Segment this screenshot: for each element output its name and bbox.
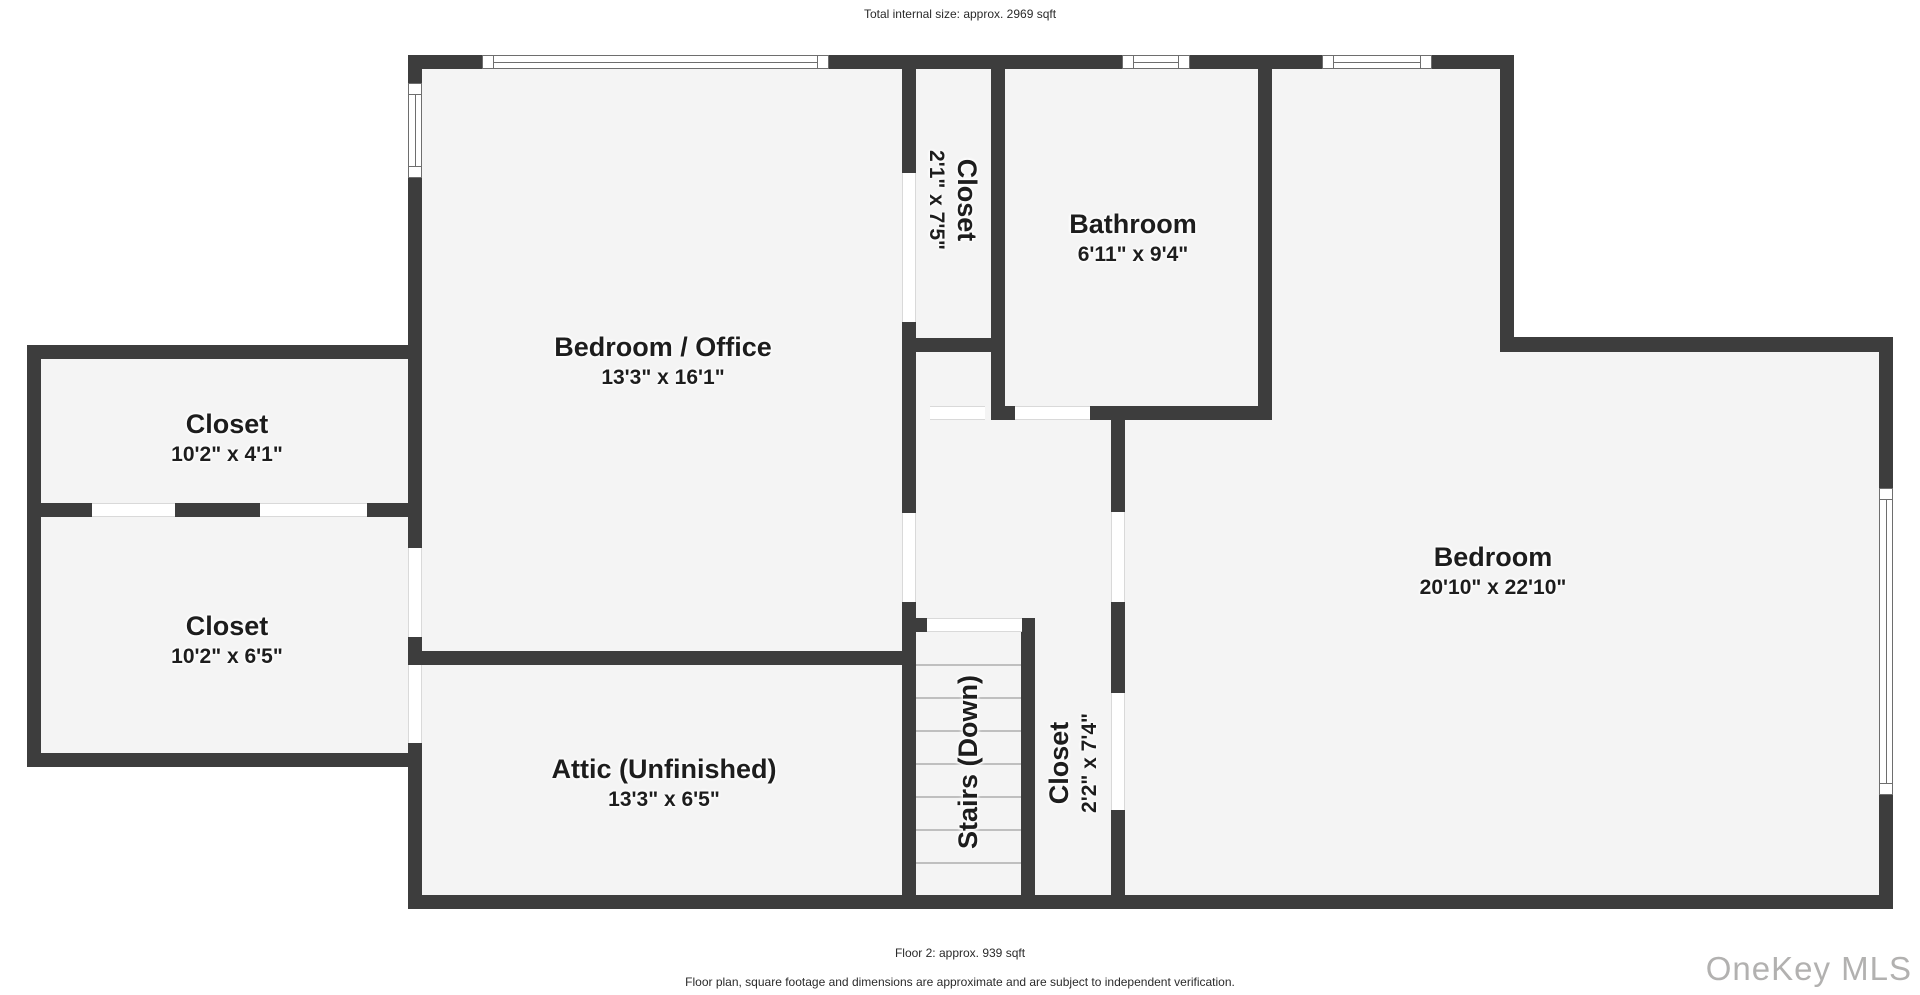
- stair-tread: [916, 664, 1021, 666]
- wall-bathroom-right: [1258, 55, 1272, 420]
- room-label-stairs: Stairs (Down): [952, 675, 986, 849]
- room-label-bathroom: Bathroom 6'11" x 9'4": [1069, 208, 1197, 268]
- wall-bedroom-step: [1500, 337, 1893, 352]
- door-opening-wing-divider-1: [92, 503, 175, 517]
- window-cap: [408, 83, 422, 95]
- window-glass-line: [1886, 500, 1887, 783]
- door-opening-closet-to-bedroom-office: [408, 548, 422, 637]
- stair-tread: [916, 862, 1021, 864]
- room-dims: 13'3" x 6'5": [552, 787, 777, 813]
- room-name: Stairs (Down): [952, 675, 986, 849]
- room-dims: 6'11" x 9'4": [1069, 242, 1197, 268]
- room-label-closet-bottom-left: Closet 10'2" x 6'5": [171, 610, 283, 670]
- window-bedroom-top: [1322, 55, 1432, 69]
- wall-center-closet-right: [991, 62, 1005, 420]
- room-dims: 20'10" x 22'10": [1420, 575, 1567, 601]
- window-cap: [1879, 783, 1893, 795]
- floor-area-main-block: [415, 345, 1886, 904]
- door-opening-stairs-top: [927, 618, 1022, 632]
- floor-plan-canvas: Total internal size: approx. 2969 sqft: [0, 0, 1920, 995]
- window-cap: [408, 166, 422, 178]
- door-opening-landing-to-bedroom: [1111, 512, 1125, 602]
- room-label-closet-top-left: Closet 10'2" x 4'1": [171, 408, 283, 468]
- window-cap: [1879, 488, 1893, 500]
- room-name: Closet: [171, 610, 283, 644]
- window-glass-line: [415, 95, 416, 166]
- room-dims: 13'3" x 16'1": [554, 365, 772, 391]
- window-cap: [817, 55, 829, 69]
- room-name: Bathroom: [1069, 208, 1197, 242]
- window-bathroom-top: [1122, 55, 1190, 69]
- door-opening-landing-left: [902, 513, 916, 602]
- wall-center-closet-bottom: [902, 338, 1005, 352]
- room-dims: 2'1" x 7'5": [923, 150, 949, 250]
- window-glass-line: [1134, 62, 1178, 63]
- wall-left-main: [408, 55, 422, 909]
- door-opening-center-closet: [902, 173, 916, 322]
- window-bedroom-right: [1879, 488, 1893, 795]
- disclaimer-caption: Floor plan, square footage and dimension…: [685, 975, 1235, 989]
- door-opening-landing-top: [930, 406, 985, 420]
- room-label-attic: Attic (Unfinished) 13'3" x 6'5": [552, 753, 777, 813]
- room-label-bedroom-office: Bedroom / Office 13'3" x 16'1": [554, 331, 772, 391]
- watermark: OneKey MLS: [1706, 950, 1912, 988]
- wall-wing-left: [27, 345, 41, 767]
- window-glass-line: [1334, 62, 1420, 63]
- room-name: Closet: [171, 408, 283, 442]
- window-glass-line: [494, 62, 817, 63]
- window-bedroom-office-top: [482, 55, 829, 69]
- wall-top-right-vertical: [1500, 55, 1514, 352]
- room-name: Closet: [1043, 713, 1077, 813]
- window-bedroom-office-left: [408, 83, 422, 178]
- wall-stairs-right: [1021, 618, 1035, 909]
- window-cap: [482, 55, 494, 69]
- room-dims: 10'2" x 4'1": [171, 442, 283, 468]
- wall-bedroom-left: [1111, 406, 1125, 909]
- wall-wing-bottom: [27, 753, 422, 767]
- floor-caption: Floor 2: approx. 939 sqft: [895, 946, 1025, 960]
- room-name: Bedroom / Office: [554, 331, 772, 365]
- room-dims: 2'2" x 7'4": [1077, 713, 1103, 813]
- door-opening-closet-to-attic: [408, 665, 422, 743]
- room-label-closet-right: Closet 2'2" x 7'4": [1043, 713, 1103, 813]
- window-cap: [1122, 55, 1134, 69]
- room-name: Bedroom: [1420, 541, 1567, 575]
- room-name: Attic (Unfinished): [552, 753, 777, 787]
- window-cap: [1322, 55, 1334, 69]
- window-cap: [1420, 55, 1432, 69]
- total-size-caption: Total internal size: approx. 2969 sqft: [864, 7, 1056, 21]
- room-label-bedroom: Bedroom 20'10" x 22'10": [1420, 541, 1567, 601]
- window-cap: [1178, 55, 1190, 69]
- room-label-center-closet: Closet 2'1" x 7'5": [923, 150, 983, 250]
- room-name: Closet: [949, 150, 983, 250]
- wall-attic-top: [408, 651, 916, 665]
- wall-wing-top: [27, 345, 422, 359]
- wall-bottom: [408, 895, 1893, 909]
- door-opening-bathroom: [1015, 406, 1090, 420]
- door-opening-wing-divider-2: [260, 503, 367, 517]
- door-opening-right-closet: [1111, 693, 1125, 810]
- room-dims: 10'2" x 6'5": [171, 644, 283, 670]
